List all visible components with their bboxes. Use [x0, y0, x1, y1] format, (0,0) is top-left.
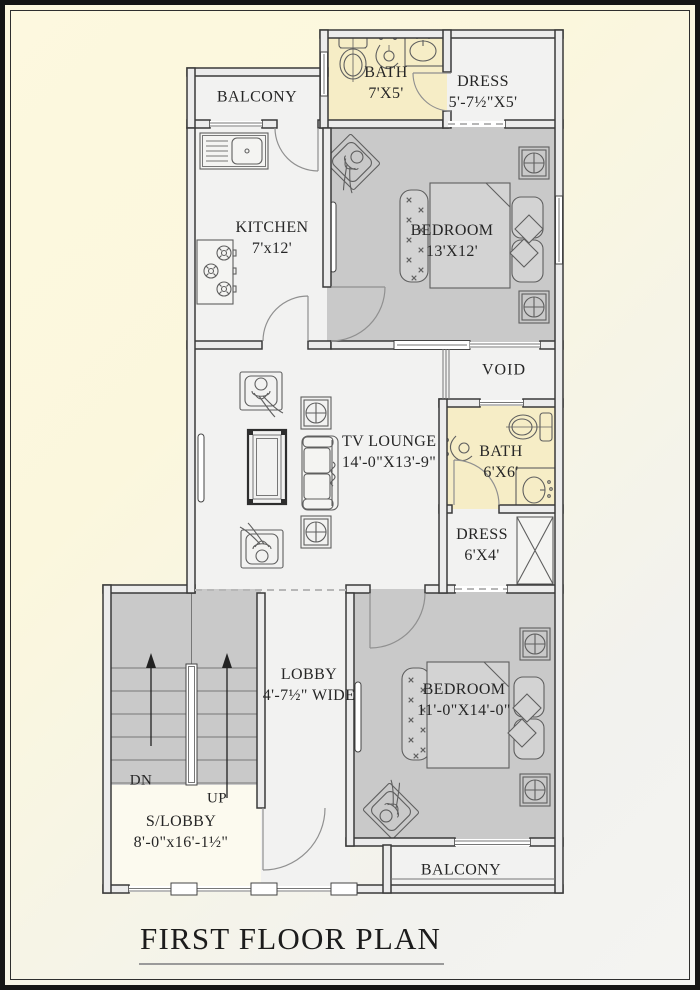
- room-dims: 5'-7½"X5': [449, 93, 518, 114]
- room-name: BATH: [364, 63, 407, 84]
- stair-label-up: UP: [207, 789, 227, 809]
- room-name: VOID: [482, 361, 526, 382]
- sofa-icon: [302, 436, 338, 510]
- room-label-void: VOID: [482, 361, 526, 382]
- post: [331, 883, 357, 895]
- room-dims: 14'-0"X13'-9": [342, 453, 436, 474]
- room-label-bath-mid: BATH 6'X6': [479, 442, 522, 484]
- post: [251, 883, 277, 895]
- page-title: FIRST FLOOR PLAN: [139, 921, 444, 965]
- room-label-balcony-bottom: BALCONY: [421, 861, 501, 882]
- room-dims: 8'-0"x16'-1½": [134, 833, 229, 854]
- room-name: BALCONY: [217, 88, 297, 109]
- floor-plan-page: BALCONY BATH 7'X5' DRESS 5'-7½"X5' KITCH…: [0, 0, 700, 990]
- up-text: UP: [207, 789, 227, 809]
- room-name: S/LOBBY: [134, 812, 229, 833]
- floor-plan-drawing: [0, 0, 700, 990]
- wardrobe-icon: [517, 517, 553, 584]
- post: [171, 883, 197, 895]
- room-label-s-lobby: S/LOBBY 8'-0"x16'-1½": [134, 812, 229, 854]
- stove-icon: [197, 240, 236, 304]
- room-label-bedroom-top: BEDROOM 13'X12': [411, 221, 494, 263]
- tv-icon: [355, 682, 361, 752]
- room-label-bath-top: BATH 7'X5': [364, 63, 407, 105]
- room-label-lobby: LOBBY 4'-7½" WIDE: [263, 665, 356, 707]
- room-dims: 11'-0"X14'-0": [417, 701, 511, 722]
- room-label-kitchen: KITCHEN 7'x12': [235, 218, 308, 260]
- room-label-dress-top: DRESS 5'-7½"X5': [449, 72, 518, 114]
- room-name: BEDROOM: [411, 221, 494, 242]
- room-label-balcony-top: BALCONY: [217, 88, 297, 109]
- tv-console-icon: [248, 430, 286, 504]
- kitchen-sink-icon: [200, 133, 268, 169]
- floor-lobby: [261, 589, 350, 889]
- room-name: DRESS: [456, 525, 508, 546]
- tv-icon: [198, 434, 204, 502]
- room-dims: 7'X5': [364, 84, 407, 105]
- room-label-dress-mid: DRESS 6'X4': [456, 525, 508, 567]
- room-name: TV LOUNGE: [342, 432, 436, 453]
- room-name: KITCHEN: [235, 218, 308, 239]
- room-name: BALCONY: [421, 861, 501, 882]
- dn-text: DN: [130, 771, 152, 791]
- room-name: BEDROOM: [417, 680, 511, 701]
- room-dims: 6'X4': [456, 546, 508, 567]
- room-label-bedroom-bottom: BEDROOM 11'-0"X14'-0": [417, 680, 511, 722]
- room-name: LOBBY: [263, 665, 356, 686]
- room-name: BATH: [479, 442, 522, 463]
- room-name: DRESS: [449, 72, 518, 93]
- floor-stairs: [107, 589, 261, 785]
- room-dims: 6'X6': [479, 463, 522, 484]
- room-dims: 4'-7½" WIDE: [263, 686, 356, 707]
- stair-label-dn: DN: [130, 771, 152, 791]
- room-dims: 13'X12': [411, 242, 494, 263]
- room-label-tv-lounge: TV LOUNGE 14'-0"X13'-9": [342, 432, 436, 474]
- room-dims: 7'x12': [235, 239, 308, 260]
